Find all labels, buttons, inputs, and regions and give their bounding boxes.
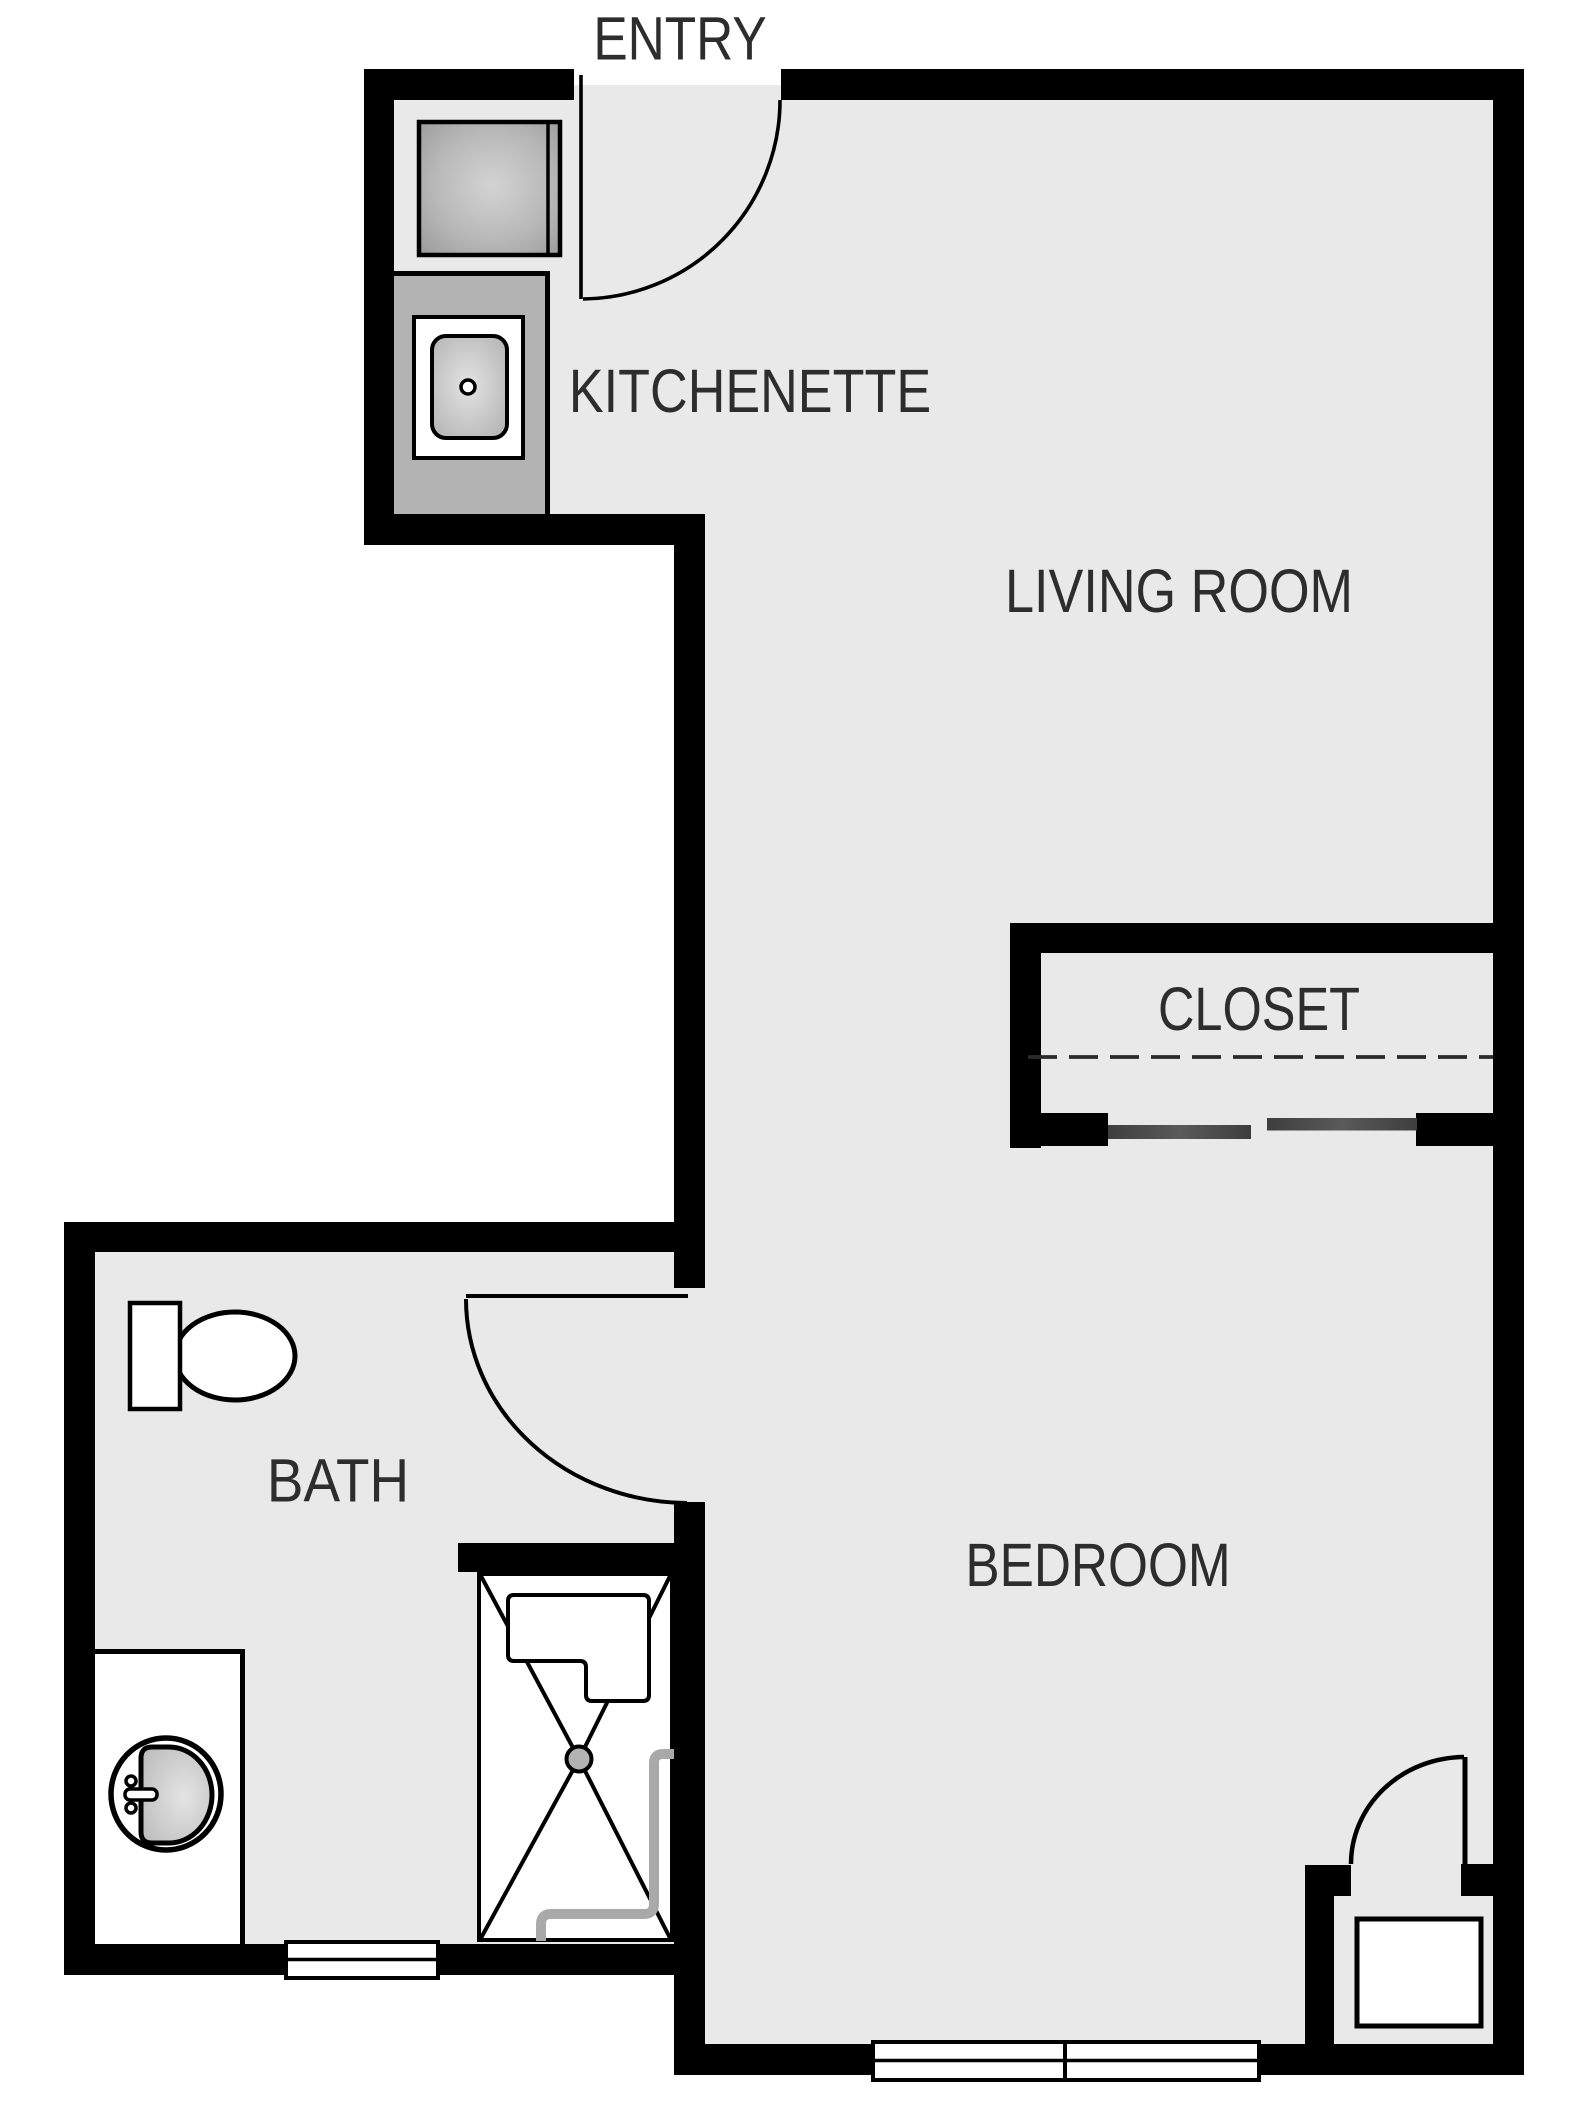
svg-text:LIVING ROOM: LIVING ROOM: [1005, 558, 1353, 626]
svg-text:ENTRY: ENTRY: [593, 4, 766, 72]
svg-text:BEDROOM: BEDROOM: [965, 1531, 1230, 1599]
svg-text:BATH: BATH: [267, 1447, 409, 1515]
svg-text:CLOSET: CLOSET: [1158, 975, 1360, 1044]
svg-text:KITCHENETTE: KITCHENETTE: [569, 358, 931, 426]
